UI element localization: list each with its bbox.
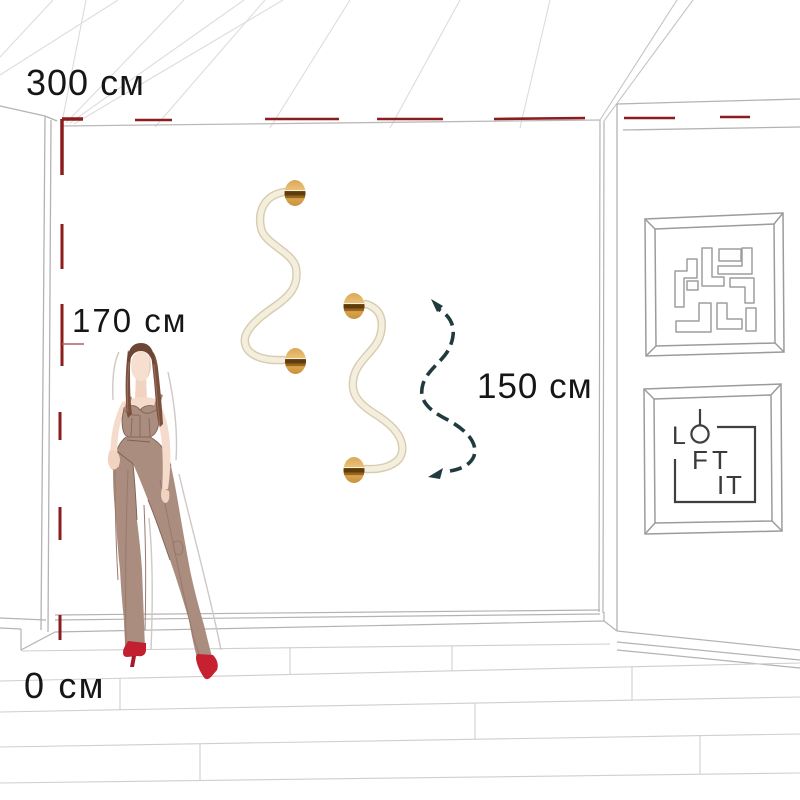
svg-text:0 см: 0 см <box>24 665 106 706</box>
svg-text:300 см: 300 см <box>26 62 145 103</box>
svg-text:L: L <box>672 422 686 450</box>
svg-text:I: I <box>717 470 724 500</box>
svg-text:170 см: 170 см <box>72 302 187 339</box>
svg-text:T: T <box>726 470 742 500</box>
svg-text:150 см: 150 см <box>477 367 593 406</box>
svg-text:F: F <box>692 445 708 475</box>
